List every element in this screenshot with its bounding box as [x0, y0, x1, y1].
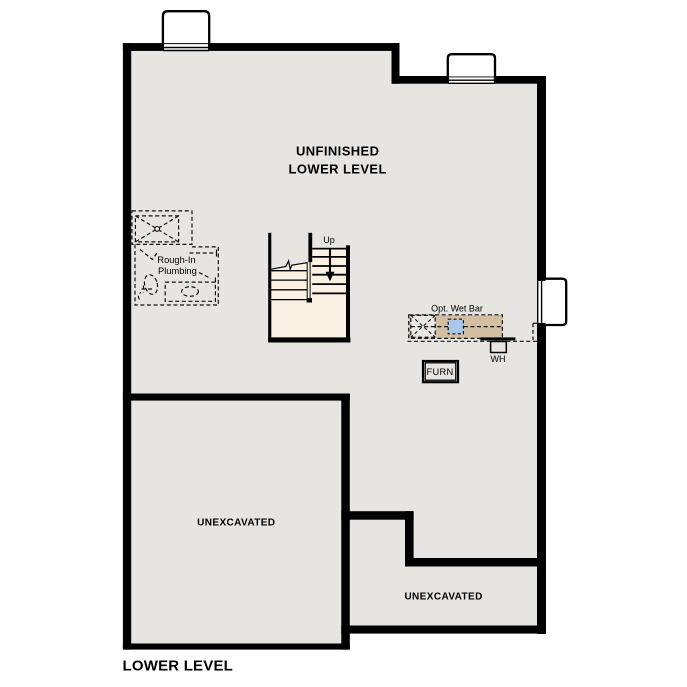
svg-text:LOWER LEVEL: LOWER LEVEL [123, 658, 234, 675]
svg-text:FURN: FURN [426, 367, 453, 377]
svg-text:UNFINISHED: UNFINISHED [296, 144, 379, 159]
svg-text:UNEXCAVATED: UNEXCAVATED [404, 592, 482, 603]
svg-text:Opt. Wet Bar: Opt. Wet Bar [431, 303, 483, 313]
svg-text:WH: WH [491, 354, 506, 364]
svg-text:UNEXCAVATED: UNEXCAVATED [197, 517, 275, 528]
svg-text:Rough-In: Rough-In [157, 255, 195, 265]
svg-text:Plumbing: Plumbing [158, 266, 197, 276]
svg-text:LOWER LEVEL: LOWER LEVEL [289, 161, 387, 176]
svg-text:Up: Up [323, 235, 335, 245]
